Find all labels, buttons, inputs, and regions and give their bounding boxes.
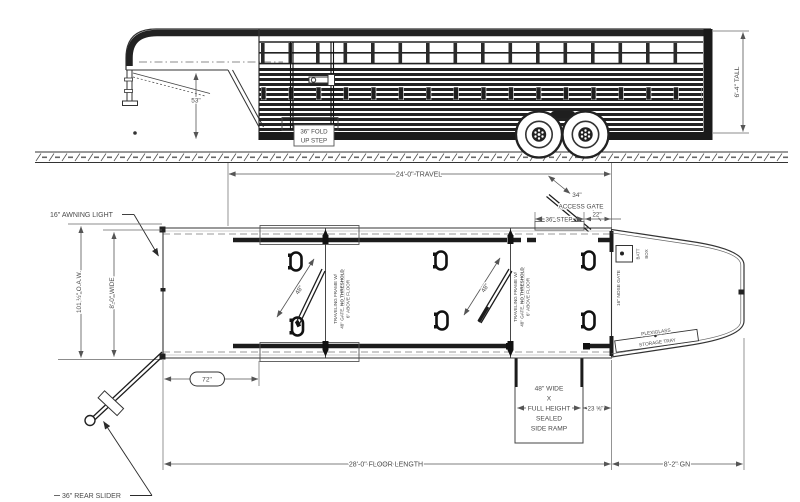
plan-view: 24'-0" TRAVEL 34" ACCESS GATE 36" STEP 2… bbox=[50, 163, 745, 500]
note1-line2: 48" GATE, NO THRESHOLD bbox=[339, 269, 344, 329]
trailer-body-side bbox=[259, 29, 713, 140]
rear-post bbox=[704, 29, 713, 140]
dim-oaw-label: 101 ½" O.A.W. bbox=[75, 271, 83, 313]
dim-height-tall: 6'-4" TALL bbox=[713, 31, 749, 133]
ramp-label-5: SIDE RAMP bbox=[531, 426, 568, 433]
side-mid-posts bbox=[261, 87, 702, 100]
dim-72: 72" bbox=[165, 361, 260, 386]
awning-light-label: 16" AWNING LIGHT bbox=[50, 212, 114, 219]
plexiglass-storage-tray: PLEXIGLASS STORAGE TRAY bbox=[614, 324, 699, 352]
gate-post-1 bbox=[323, 228, 329, 358]
note2-line1: TRAVELING FRAME W/ bbox=[513, 271, 518, 322]
fold-step-label-2: UP STEP bbox=[301, 138, 327, 145]
ramp-label-1: 48" WIDE bbox=[535, 386, 564, 393]
dim-gn-label: 8'-2" GN bbox=[664, 462, 690, 469]
frame-note-1: TRAVELING FRAME W/ 48" GATE, NO THRESHOL… bbox=[333, 269, 351, 329]
dim-floor-label: 28'-0" FLOOR LENGTH bbox=[349, 462, 423, 469]
access-gate-label: ACCESS GATE bbox=[559, 204, 604, 211]
gate1-dim-label: 48" bbox=[294, 285, 305, 296]
gooseneck-nose-plan: BATT BOX 16" NOSE GATE PLEXIGLASS STORAG… bbox=[612, 230, 745, 358]
side-vent-posts bbox=[261, 43, 701, 63]
wheel-rear bbox=[563, 112, 609, 158]
trailer-drawing: 53" bbox=[0, 0, 800, 502]
note2-line2: 48" GATE, NO THRESHOLD bbox=[519, 267, 524, 327]
frame-note-2: TRAVELING FRAME W/ 48" GATE, NO THRESHOL… bbox=[513, 267, 531, 327]
note2-line3: 6" ABOVE FLOOR bbox=[526, 277, 531, 316]
dim-floor-width: 8'-0" WIDE bbox=[103, 230, 162, 357]
dim-22-label: 22" bbox=[592, 212, 601, 219]
coupler-hitch bbox=[123, 70, 138, 135]
note1-line3: 6" ABOVE FLOOR bbox=[346, 279, 351, 318]
ramp-label-4: SEALED bbox=[536, 416, 562, 423]
awning-light-callout: 16" AWNING LIGHT bbox=[50, 212, 159, 256]
dim-step-group: 36" STEP 22" bbox=[535, 212, 621, 231]
gate2-dim-label: 48" bbox=[480, 283, 491, 294]
ground-road bbox=[35, 152, 788, 163]
dim-gooseneck-clearance: 53" bbox=[191, 74, 200, 139]
fold-step-label-1: 36" FOLD bbox=[300, 129, 328, 136]
dim-tall-label: 6'-4" TALL bbox=[734, 66, 741, 97]
box-label: BOX bbox=[644, 249, 649, 258]
dim-72-label: 72" bbox=[202, 377, 212, 384]
rear-slider-gate: 36" REAR SLIDER bbox=[54, 352, 165, 500]
note1-line1: TRAVELING FRAME W/ bbox=[333, 273, 338, 324]
dim-travel: 24'-0" TRAVEL bbox=[229, 172, 611, 179]
ramp-label-2: X bbox=[547, 396, 552, 403]
dim-53-label: 53" bbox=[191, 98, 200, 105]
tandem-wheels bbox=[516, 111, 609, 158]
dim-step-label: 36" STEP bbox=[546, 217, 573, 224]
dim-wide-label: 8'-0" WIDE bbox=[109, 277, 116, 308]
trailer-walls-plan bbox=[160, 227, 613, 360]
rear-slider-label: 36" REAR SLIDER bbox=[62, 493, 121, 500]
side-ramp: 48" WIDE X FULL HEIGHT SEALED SIDE RAMP … bbox=[515, 358, 611, 443]
batt-label: BATT bbox=[636, 248, 641, 259]
wheel-front bbox=[516, 112, 562, 158]
access-gate-dim-label: 34" bbox=[572, 192, 581, 199]
interior-gate-2: 48" bbox=[464, 258, 512, 323]
trailer-drawing-canvas: 53" bbox=[0, 0, 800, 502]
ramp-label-3: FULL HEIGHT bbox=[528, 406, 571, 413]
slider-handle bbox=[98, 391, 123, 416]
battery-box bbox=[616, 246, 633, 263]
dim-travel-label: 24'-0" TRAVEL bbox=[396, 172, 442, 179]
nose-gate-label: 16" NOSE GATE bbox=[616, 270, 622, 306]
side-elevation-view: 53" bbox=[35, 29, 788, 163]
dim-ramp-side-label: 23 ⅝" bbox=[588, 406, 604, 413]
